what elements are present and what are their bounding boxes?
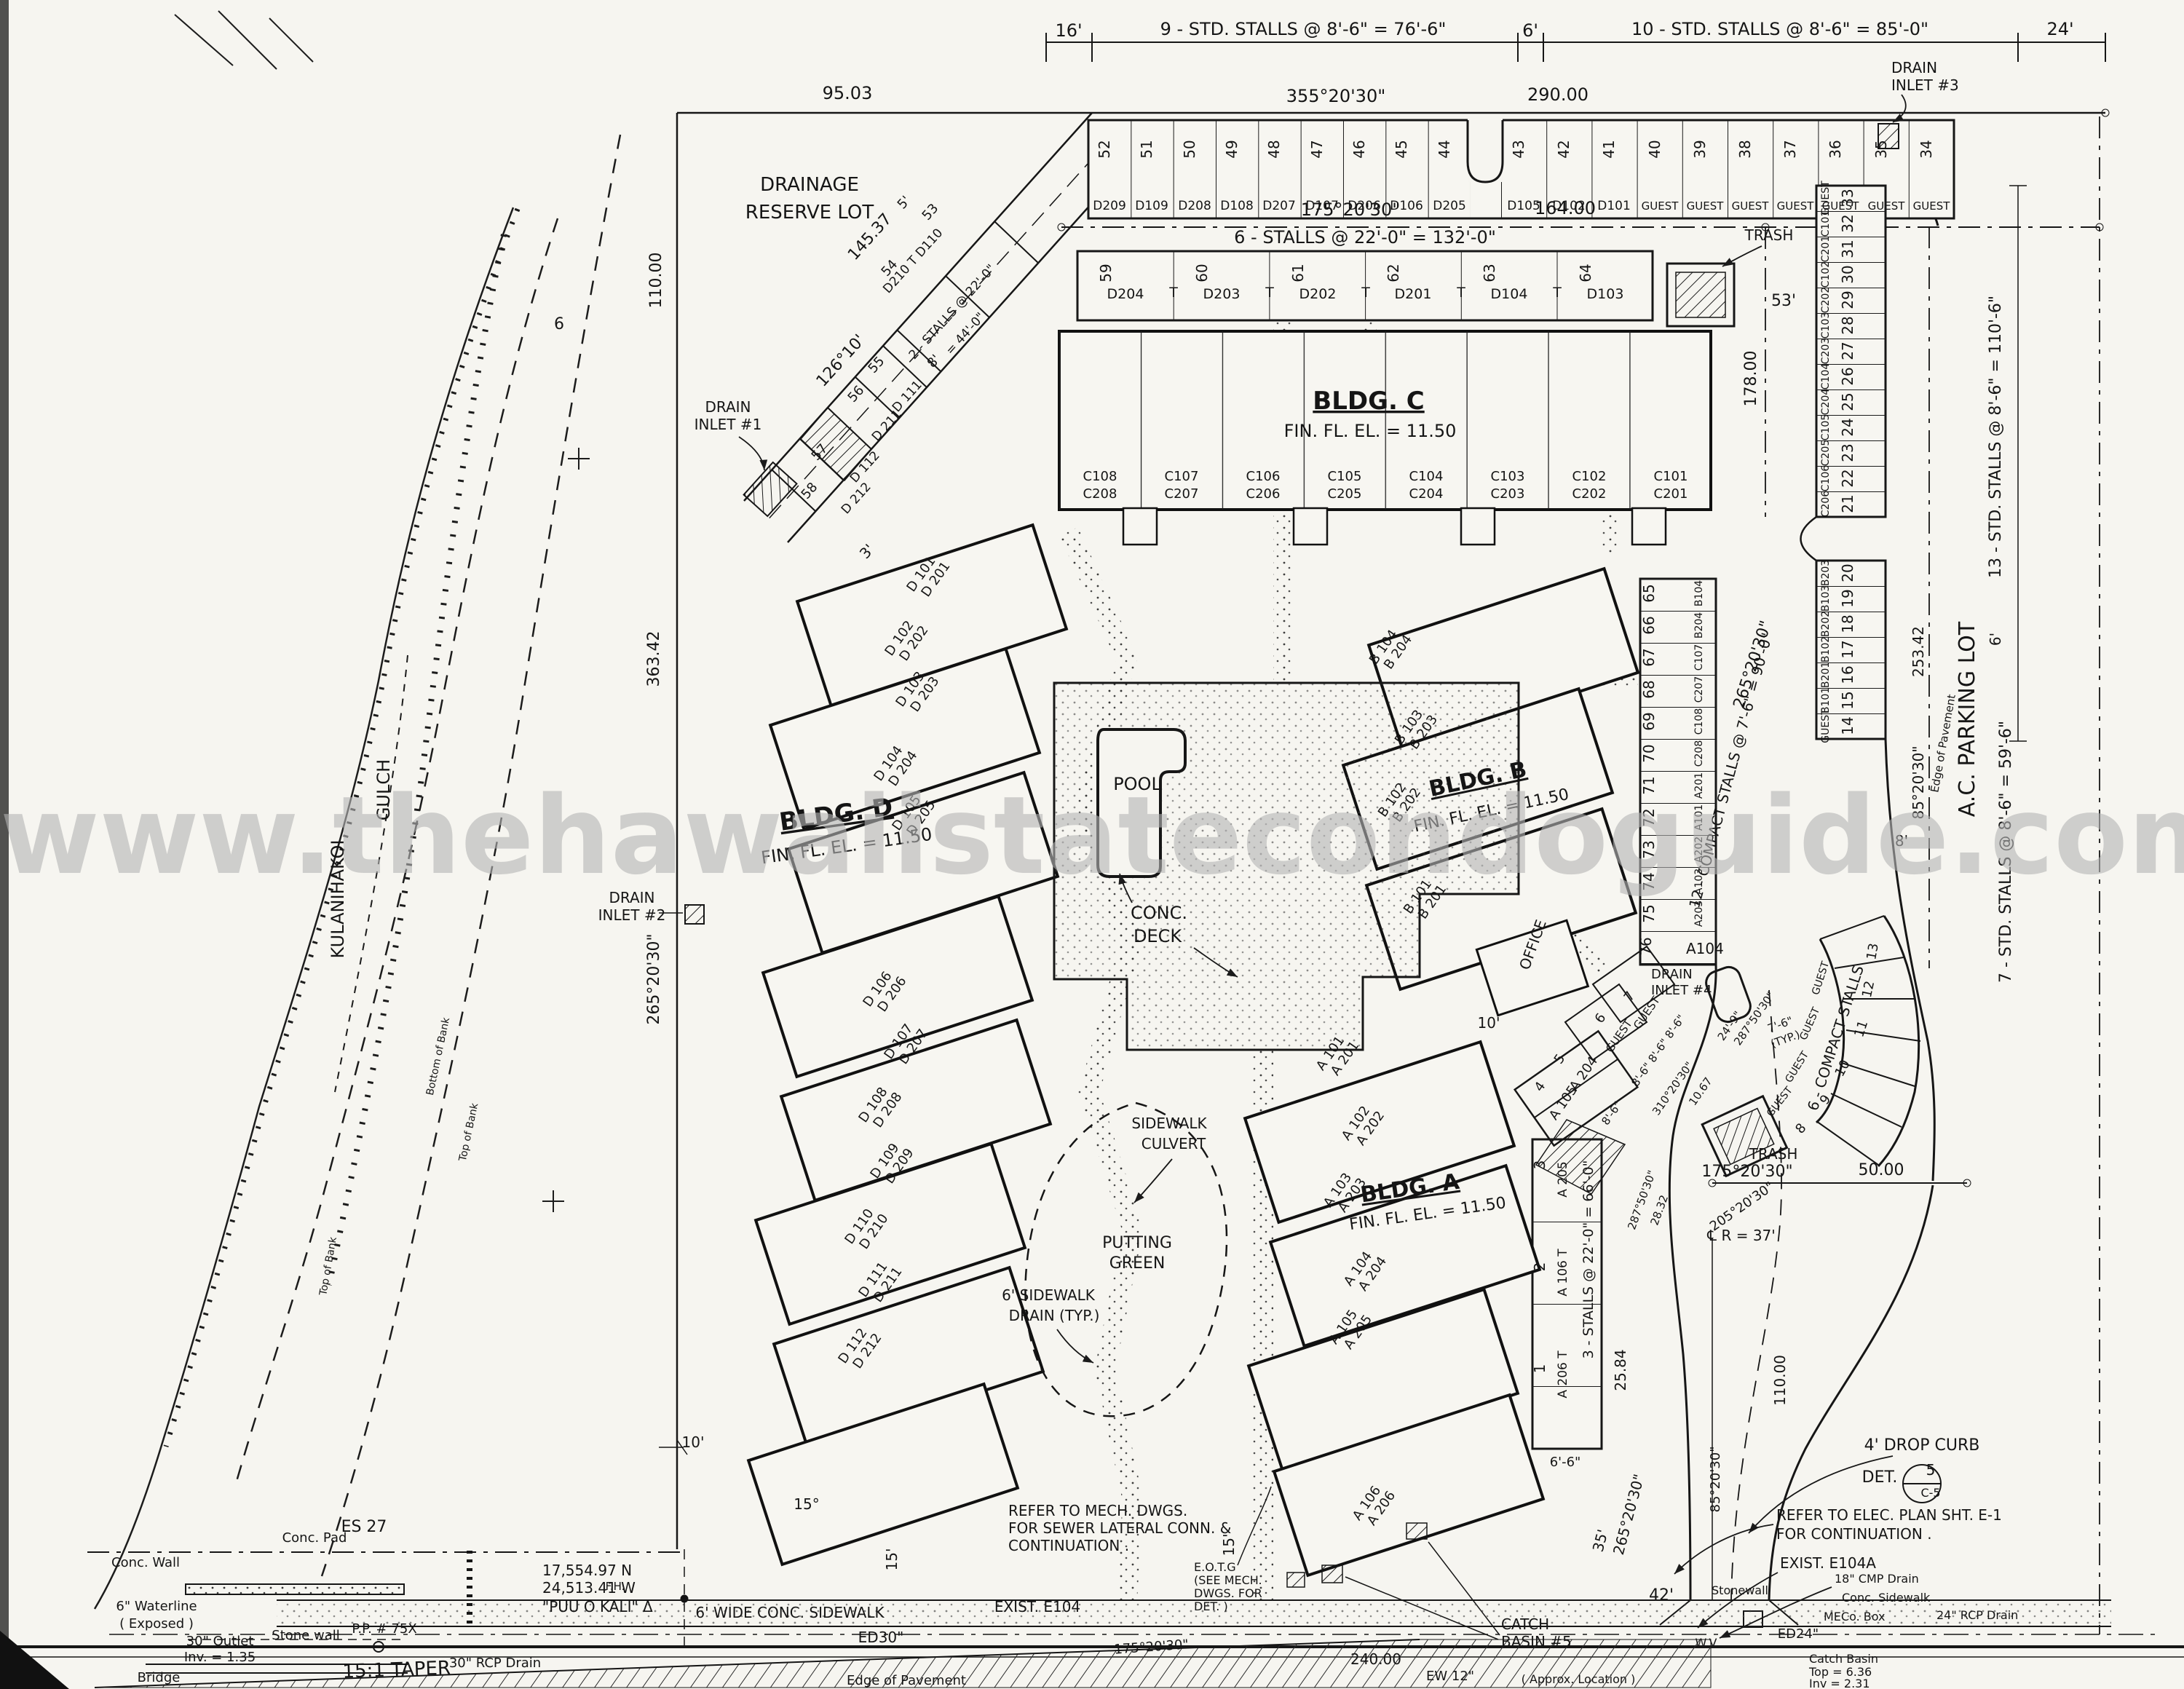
unit: C201 <box>1654 486 1688 502</box>
dim: 85°20'30" <box>1910 745 1927 819</box>
unit: D203 <box>1203 286 1241 302</box>
stall-no: 59 <box>1097 264 1115 282</box>
stall-no: 17 <box>1839 640 1856 658</box>
feature: TRASH <box>1749 1145 1798 1163</box>
stall-no: 47 <box>1308 140 1326 158</box>
stall-no: 2 <box>1531 1262 1548 1272</box>
feature: POOL <box>1113 774 1161 794</box>
unit: B104 <box>1693 580 1705 606</box>
stall-no: 31 <box>1839 240 1856 258</box>
stall-no: 37 <box>1781 140 1799 158</box>
stall-no: 63 <box>1481 264 1498 282</box>
unit: B103 <box>1820 585 1832 612</box>
stall-no: 34 <box>1918 140 1935 158</box>
unit: A 106 T <box>1556 1249 1570 1297</box>
bldg-c-fl: FIN. FL. EL. = 11.50 <box>1284 421 1457 441</box>
stall-no: 13 <box>1864 942 1882 961</box>
unit: C203 <box>1491 486 1525 502</box>
unit: GUEST <box>1820 708 1832 743</box>
note: EW 12" <box>1426 1669 1474 1684</box>
unit: C108 <box>1693 708 1705 735</box>
dim: 290.00 <box>1527 84 1588 105</box>
unit: D208 <box>1178 199 1211 213</box>
note: ( Exposed ) <box>119 1616 194 1631</box>
drain-inlet-2 <box>685 905 704 924</box>
note: CATCH <box>1501 1615 1549 1633</box>
unit: T <box>1552 285 1562 301</box>
note: Inv = 2.31 <box>1809 1677 1870 1689</box>
note: ES 27 <box>341 1518 387 1536</box>
unit: T <box>1361 285 1370 301</box>
unit: A201 <box>1693 772 1705 799</box>
unit: C108 <box>1083 469 1117 484</box>
stall-no: 35 <box>1872 140 1890 158</box>
note: Inv. = 1.35 <box>184 1650 256 1665</box>
site-plan-drawing: 16'9 - STD. STALLS @ 8'-6" = 76'-6"6'10 … <box>0 0 2184 1689</box>
unit: D202 <box>1299 286 1337 302</box>
unit: A 206 T <box>1556 1350 1570 1399</box>
note: SIDEWALK <box>1131 1115 1207 1132</box>
unit: C104 <box>1409 469 1444 484</box>
feature: INLET #1 <box>695 416 762 433</box>
note: 6' SIDEWALK <box>1002 1286 1096 1304</box>
stall-no: 36 <box>1827 140 1844 158</box>
dim: 8' <box>1895 832 1908 850</box>
note: ED24" <box>1778 1626 1819 1642</box>
dim: 16' <box>1055 20 1082 41</box>
dim: 42' <box>1649 1586 1674 1605</box>
unit: C106 <box>1820 465 1832 492</box>
unit: C204 <box>1820 389 1832 416</box>
feature: DRAIN <box>609 889 654 906</box>
dim: 85°20'30" <box>1708 1447 1723 1513</box>
dim: 25.84 <box>1612 1349 1629 1391</box>
site-plan-page: 16'9 - STD. STALLS @ 8'-6" = 76'-6"6'10 … <box>0 0 2184 1689</box>
note: 30" RCP Drain <box>449 1656 541 1671</box>
dim: 13 - STD. STALLS @ 8'-6" = 110'-6" <box>1987 296 2005 578</box>
dim: 53' <box>1771 292 1796 310</box>
note: DRAIN (TYP.) <box>1009 1307 1100 1324</box>
note: Conc. Sidewalk <box>1842 1591 1931 1605</box>
unit: C105 <box>1820 414 1832 441</box>
feature: DRAIN <box>705 398 751 416</box>
unit: C107 <box>1693 644 1705 671</box>
stall-no: 42 <box>1555 140 1572 158</box>
feature: RESERVE LOT <box>745 202 874 224</box>
dim: 110.00 <box>1771 1355 1789 1406</box>
dim: 363.42 <box>645 631 663 687</box>
note: 5 <box>1926 1461 1936 1479</box>
feature: INLET #2 <box>598 906 666 924</box>
unit: C105 <box>1328 469 1362 484</box>
note: Stonewall <box>1712 1583 1768 1597</box>
note: Conc. Pad <box>282 1530 347 1546</box>
note: ( Approx. Location ) <box>1522 1672 1636 1686</box>
unit: C103 <box>1491 469 1525 484</box>
stall-no: 72 <box>1640 808 1658 826</box>
note: FOR CONTINUATION . <box>1776 1525 1932 1543</box>
dim: 10' <box>1478 1014 1500 1032</box>
feature: DRAIN <box>1651 967 1693 982</box>
feature: TRASH <box>1744 226 1794 244</box>
stall-no: 27 <box>1839 341 1856 360</box>
note: DWGS. FOR <box>1194 1586 1262 1600</box>
stall-no: 76 <box>1637 937 1655 955</box>
note: FOR SEWER LATERAL CONN. & <box>1008 1519 1231 1537</box>
unit: GUEST <box>1820 181 1832 215</box>
note: 6" Waterline <box>116 1599 197 1614</box>
note: 24" RCP Drain <box>1936 1608 2018 1622</box>
unit: C202 <box>1572 486 1607 502</box>
note: Stone wall <box>272 1628 339 1643</box>
unit: B102 <box>1820 636 1832 662</box>
unit: GUEST <box>1777 199 1815 213</box>
stall-no: 39 <box>1691 140 1709 158</box>
note: 6' WIDE CONC. SIDEWALK <box>695 1604 885 1621</box>
stall-no: 18 <box>1839 614 1856 633</box>
feature: INLET #4 <box>1651 983 1712 998</box>
note: W.V. <box>1695 1636 1719 1650</box>
dim: 265°20'30" <box>645 933 663 1024</box>
feature: GREEN <box>1109 1254 1166 1273</box>
stall-no: 15 <box>1839 691 1856 709</box>
stall-no: 3 <box>1531 1160 1548 1170</box>
bldg-c-title: BLDG. C <box>1313 387 1424 416</box>
note: 30" Outlet <box>186 1634 254 1649</box>
note: F.H. <box>606 1580 625 1593</box>
note: BASIN #5 <box>1501 1633 1572 1650</box>
dim: 164.00 <box>1535 198 1596 218</box>
unit: C205 <box>1328 486 1362 502</box>
feature: INLET #3 <box>1891 76 1959 94</box>
stall-no: 64 <box>1577 264 1594 282</box>
dim: 15' <box>883 1548 901 1571</box>
unit: C204 <box>1409 486 1444 502</box>
note: REFER TO ELEC. PLAN SHT. E-1 <box>1776 1506 2002 1524</box>
note: 17,554.97 N <box>542 1562 632 1579</box>
dim: 10' <box>682 1433 705 1451</box>
dim: 178.00 <box>1742 351 1760 407</box>
unit: C201 <box>1820 236 1832 263</box>
feature: A.C. PARKING LOT <box>1955 621 1980 817</box>
stall-no: 44 <box>1436 140 1453 158</box>
unit: C206 <box>1246 486 1281 502</box>
dim: 175°20'30" <box>1701 1163 1792 1181</box>
unit: B201 <box>1820 662 1832 688</box>
feature: DRAIN <box>1891 59 1937 76</box>
dim: 355°20'30" <box>1286 86 1386 106</box>
note: Conc. Wall <box>111 1555 180 1570</box>
stall-no: 43 <box>1510 140 1527 158</box>
stall-no: 20 <box>1839 563 1856 582</box>
note: C-5 <box>1920 1486 1940 1500</box>
dim: 6' <box>1987 633 2004 646</box>
stall-no: 19 <box>1839 589 1856 607</box>
stall-no: 68 <box>1640 680 1658 698</box>
unit: C103 <box>1820 312 1832 339</box>
unit: A101 <box>1693 804 1705 831</box>
dim: 7 - STD. STALLS @ 8'-6" = 59'-6" <box>1997 721 2015 983</box>
unit: D109 <box>1135 199 1168 213</box>
stall-no: 23 <box>1839 443 1856 462</box>
unit: D103 <box>1587 286 1624 302</box>
stall-no: 62 <box>1385 264 1402 282</box>
feature: KULANIHAKOI <box>328 840 348 959</box>
unit: D101 <box>1597 199 1631 213</box>
stall-no: 46 <box>1350 140 1368 158</box>
unit: A104 <box>1686 940 1724 957</box>
unit: T <box>1265 285 1274 301</box>
note: "PUU O KALI" Δ <box>542 1598 653 1615</box>
note: Edge of Pavement <box>847 1673 966 1688</box>
feature: PUTTING <box>1102 1234 1172 1252</box>
stall-no: 48 <box>1265 140 1283 158</box>
note: DET. <box>1862 1468 1898 1487</box>
stall-no: 33 <box>1839 189 1856 207</box>
note: P.P. # 75X <box>352 1621 416 1637</box>
unit: C207 <box>1693 676 1705 703</box>
dim: 15' <box>1220 1534 1238 1557</box>
stall-no: 70 <box>1640 744 1658 762</box>
unit: C101 <box>1820 210 1832 237</box>
stall-no: 41 <box>1600 140 1618 158</box>
dim: 6' <box>1522 20 1538 41</box>
note: E.O.T.G <box>1194 1560 1236 1574</box>
unit: C205 <box>1820 440 1832 467</box>
unit: D104 <box>1491 286 1528 302</box>
unit: C104 <box>1820 363 1832 390</box>
dim: 15° <box>794 1495 819 1513</box>
stall-no: 65 <box>1640 584 1658 602</box>
stall-no: 67 <box>1640 648 1658 666</box>
dim: 24' <box>2046 19 2073 39</box>
catch-basin-5 <box>1406 1523 1427 1539</box>
unit: C101 <box>1654 469 1688 484</box>
note: REFER TO MECH. DWGS. <box>1008 1502 1187 1519</box>
note: EXIST. E104A <box>1780 1554 1876 1572</box>
stall-no: 45 <box>1393 140 1410 158</box>
note: 6 <box>554 315 564 333</box>
unit: T <box>1456 285 1465 301</box>
unit: C207 <box>1165 486 1199 502</box>
stall-no: 49 <box>1223 140 1241 158</box>
stall-no: 28 <box>1839 316 1856 334</box>
dim: 9 - STD. STALLS @ 8'-6" = 76'-6" <box>1160 19 1447 39</box>
stall-no: 51 <box>1138 140 1155 158</box>
stall-no: 14 <box>1839 716 1856 735</box>
dim: 50.00 <box>1859 1161 1904 1179</box>
unit: GUEST <box>1642 199 1679 213</box>
unit: D108 <box>1220 199 1254 213</box>
stall-no: 61 <box>1289 264 1307 282</box>
unit: C102 <box>1820 261 1832 288</box>
stall-no: 40 <box>1646 140 1663 158</box>
stall-no: 22 <box>1839 469 1856 487</box>
note: 18" CMP Drain <box>1835 1572 1919 1586</box>
note: (SEE MECH. <box>1194 1573 1262 1587</box>
unit: D205 <box>1433 199 1466 213</box>
feature: GULCH <box>373 759 394 820</box>
unit: T <box>1168 285 1178 301</box>
unit: C106 <box>1246 469 1281 484</box>
note: DET. ) <box>1194 1599 1228 1613</box>
unit: B203 <box>1820 560 1832 586</box>
dim: 3 - STALLS @ 22'-0" = 66'-0" <box>1580 1160 1597 1359</box>
stall-no: 24 <box>1839 418 1856 436</box>
stall-no: 50 <box>1181 140 1198 158</box>
stall-no: 29 <box>1839 290 1856 309</box>
note: MECo. Box <box>1824 1610 1886 1623</box>
stall-no: 21 <box>1839 494 1856 513</box>
dim: ℄ R = 37' <box>1706 1227 1776 1244</box>
unit: C102 <box>1572 469 1607 484</box>
unit: C206 <box>1820 491 1832 518</box>
unit: C202 <box>1820 287 1832 314</box>
note: 4' DROP CURB <box>1864 1436 1980 1455</box>
dim: 110.00 <box>647 253 665 309</box>
note: EXIST. E104 <box>994 1598 1080 1615</box>
stall-no: 71 <box>1640 776 1658 794</box>
feature: DRAINAGE <box>760 174 859 196</box>
note: ED30" <box>858 1629 904 1646</box>
dim: 6'-6" <box>1550 1455 1581 1470</box>
stall-no: 69 <box>1640 712 1658 730</box>
note: Bridge <box>138 1670 181 1685</box>
unit: C107 <box>1165 469 1199 484</box>
unit: C208 <box>1693 740 1705 767</box>
stall-no: 1 <box>1531 1364 1548 1374</box>
stall-no: 30 <box>1839 265 1856 283</box>
unit: D201 <box>1395 286 1432 302</box>
unit: B204 <box>1693 612 1705 638</box>
unit: C203 <box>1820 338 1832 365</box>
dim: 6 - STALLS @ 22'-0" = 132'-0" <box>1234 227 1496 248</box>
stall-no: 52 <box>1096 140 1113 158</box>
stall-no: 25 <box>1839 392 1856 411</box>
note: CULVERT <box>1142 1135 1206 1152</box>
unit: GUEST <box>1687 199 1725 213</box>
stall-no: 73 <box>1640 840 1658 858</box>
stall-no: 38 <box>1736 140 1754 158</box>
note: CONTINUATION . <box>1008 1537 1129 1554</box>
unit: C208 <box>1083 486 1117 502</box>
unit: B202 <box>1820 611 1832 637</box>
unit: GUEST <box>1868 199 1906 213</box>
stall-no: 60 <box>1193 264 1211 282</box>
dim: 95.03 <box>823 83 873 103</box>
dim: 240.00 <box>1350 1650 1401 1668</box>
feature: DECK <box>1133 926 1182 946</box>
unit: GUEST <box>1732 199 1770 213</box>
note: 15:1 TAPER <box>342 1657 451 1682</box>
stall-no: 66 <box>1640 616 1658 634</box>
stall-no: 26 <box>1839 367 1856 385</box>
stall-no: 74 <box>1640 872 1658 890</box>
stall-no: 32 <box>1839 214 1856 232</box>
unit: D207 <box>1262 199 1296 213</box>
stall-no: 75 <box>1640 904 1658 922</box>
stall-no: 16 <box>1839 665 1856 684</box>
dim: 175°20'30" <box>1301 199 1401 220</box>
unit: D204 <box>1107 286 1144 302</box>
feature: CONC. <box>1131 903 1187 923</box>
dim: 10 - STD. STALLS @ 8'-6" = 85'-0" <box>1631 19 1928 39</box>
unit: GUEST <box>1913 199 1951 213</box>
unit: D209 <box>1093 199 1126 213</box>
dim: 253.42 <box>1910 626 1927 677</box>
unit: A 205 <box>1556 1161 1570 1197</box>
note: Catch Basin <box>1809 1652 1878 1666</box>
